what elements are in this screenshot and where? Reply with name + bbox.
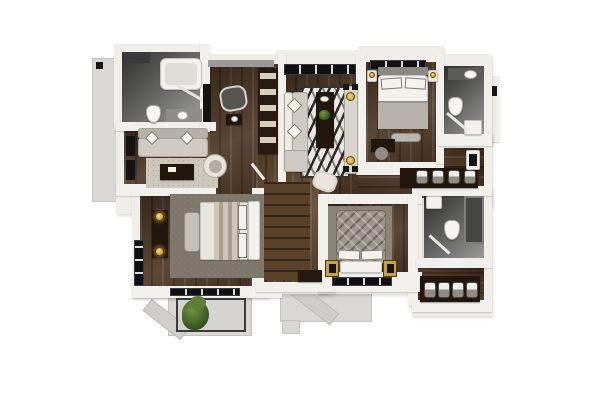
kitchen-stool-1 — [416, 170, 428, 184]
bath3-shower — [464, 196, 484, 244]
living-table-tray — [168, 167, 176, 172]
living-tv-panel-lower — [126, 160, 135, 180]
dining-chair-4 — [466, 282, 478, 298]
master-pillow-1 — [238, 205, 247, 230]
bed3-pillow-left — [338, 249, 360, 260]
lounge-speaker-4 — [352, 166, 358, 172]
dining-chair-1 — [424, 282, 436, 298]
bath3-vanity — [426, 196, 442, 209]
lounge-speaker-3 — [343, 166, 349, 172]
bed2-pillow-left — [381, 77, 403, 89]
closet-shelf-1 — [260, 73, 276, 79]
bath2-sink — [464, 70, 477, 79]
bed2-desk-chair — [375, 147, 388, 160]
lounge-lamp-1 — [346, 92, 355, 101]
hall-stairs — [264, 182, 310, 280]
living-round-chair-seat — [209, 160, 222, 173]
living-coffee-table — [160, 164, 194, 180]
window-lounge-north — [284, 64, 356, 75]
master-bench — [184, 212, 200, 252]
window-master-west — [134, 240, 144, 286]
bed2-headboard — [378, 67, 428, 75]
closet-shelf-2 — [260, 89, 276, 95]
kitchen-stool-4 — [464, 170, 476, 184]
master-blanket — [214, 202, 240, 260]
lounge-lamp-2 — [346, 156, 355, 165]
master-lamp-2 — [155, 247, 164, 256]
den-roof-ledge — [208, 60, 274, 67]
den-fireplace — [203, 84, 211, 122]
lounge-candle — [320, 96, 329, 102]
floor-plan-canvas — [0, 0, 600, 400]
bed2-bench — [391, 133, 421, 142]
left-panel-vent — [96, 62, 103, 69]
bed3-headboard — [340, 261, 382, 273]
dining-chair-2 — [438, 282, 450, 298]
entry-step — [282, 320, 300, 334]
bed2-lamp-right — [430, 72, 436, 78]
bed3-pillow-right — [361, 249, 383, 260]
bed3-nightstand-left-speaker — [329, 264, 336, 273]
lounge-chaise — [284, 150, 308, 172]
living-tv-panel-upper — [126, 136, 135, 156]
lounge-speaker-2 — [352, 84, 358, 90]
closet-shelf-5 — [260, 137, 276, 143]
wall-bath2-south — [438, 134, 492, 146]
window-master-south — [170, 288, 240, 296]
closet-shelf-3 — [260, 105, 276, 111]
bath1-mirror — [124, 52, 150, 63]
dining-chair-3 — [452, 282, 464, 298]
bathtub-basin — [165, 63, 197, 85]
bath1-sink — [177, 111, 188, 120]
wall-bath3-dining — [416, 258, 492, 268]
kitchen-stool-2 — [432, 170, 444, 184]
wall-bed3-north — [318, 194, 422, 204]
bed2-blanket — [378, 101, 428, 129]
hall-doormat — [298, 270, 322, 282]
den-side-table-dish — [231, 116, 238, 122]
master-pillow-2 — [238, 233, 247, 258]
lounge-speaker-1 — [343, 84, 349, 90]
bed3-nightstand-right-speaker — [387, 264, 394, 273]
bed2-pillow-right — [405, 77, 427, 89]
wall-hall-south — [256, 282, 334, 292]
window-bed3-south — [332, 277, 392, 286]
closet-shelf-4 — [260, 121, 276, 127]
kitchen-stool-3 — [448, 170, 460, 184]
kitchen-wall-frame-glass — [469, 154, 477, 166]
bed2-lamp-left — [369, 72, 375, 78]
master-headboard — [248, 201, 260, 260]
master-lamp-1 — [155, 212, 164, 221]
